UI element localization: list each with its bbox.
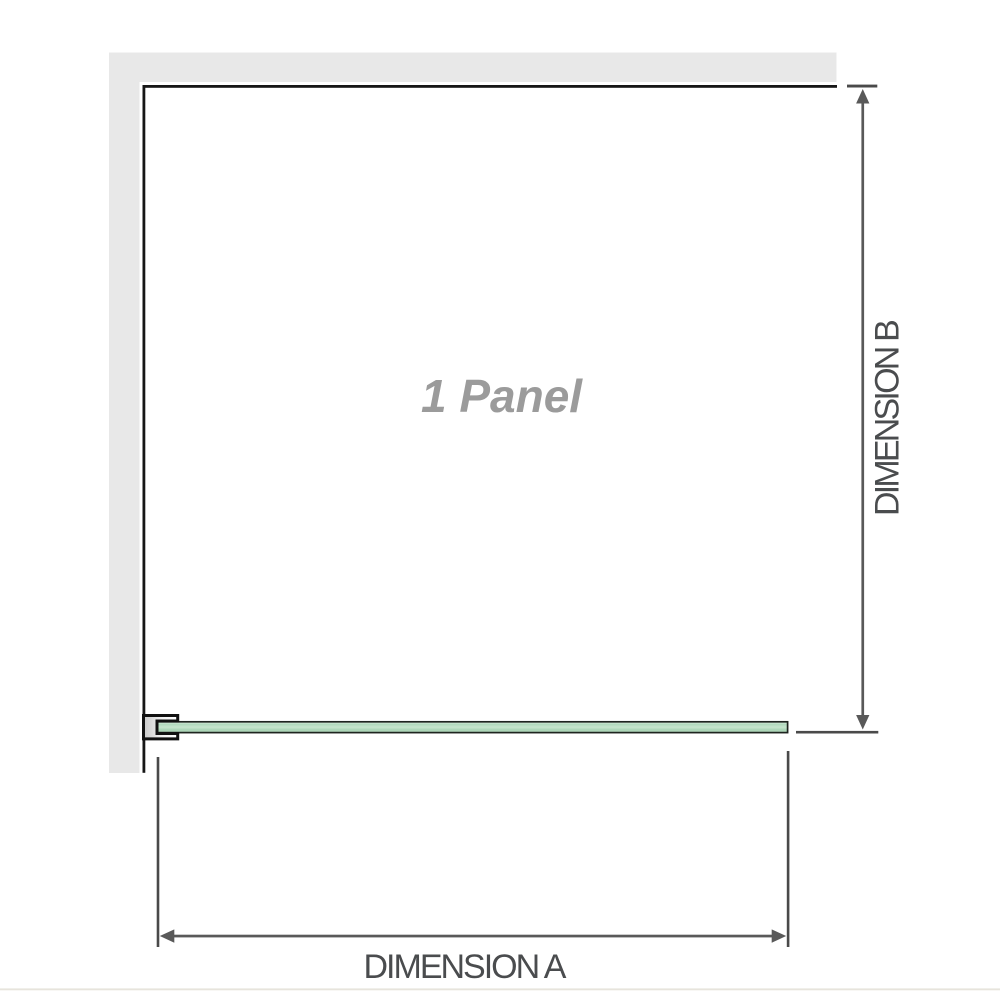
svg-text:DIMENSION B: DIMENSION B (869, 321, 907, 516)
svg-text:DIMENSION A: DIMENSION A (364, 948, 567, 986)
svg-text:1 Panel: 1 Panel (421, 370, 583, 422)
